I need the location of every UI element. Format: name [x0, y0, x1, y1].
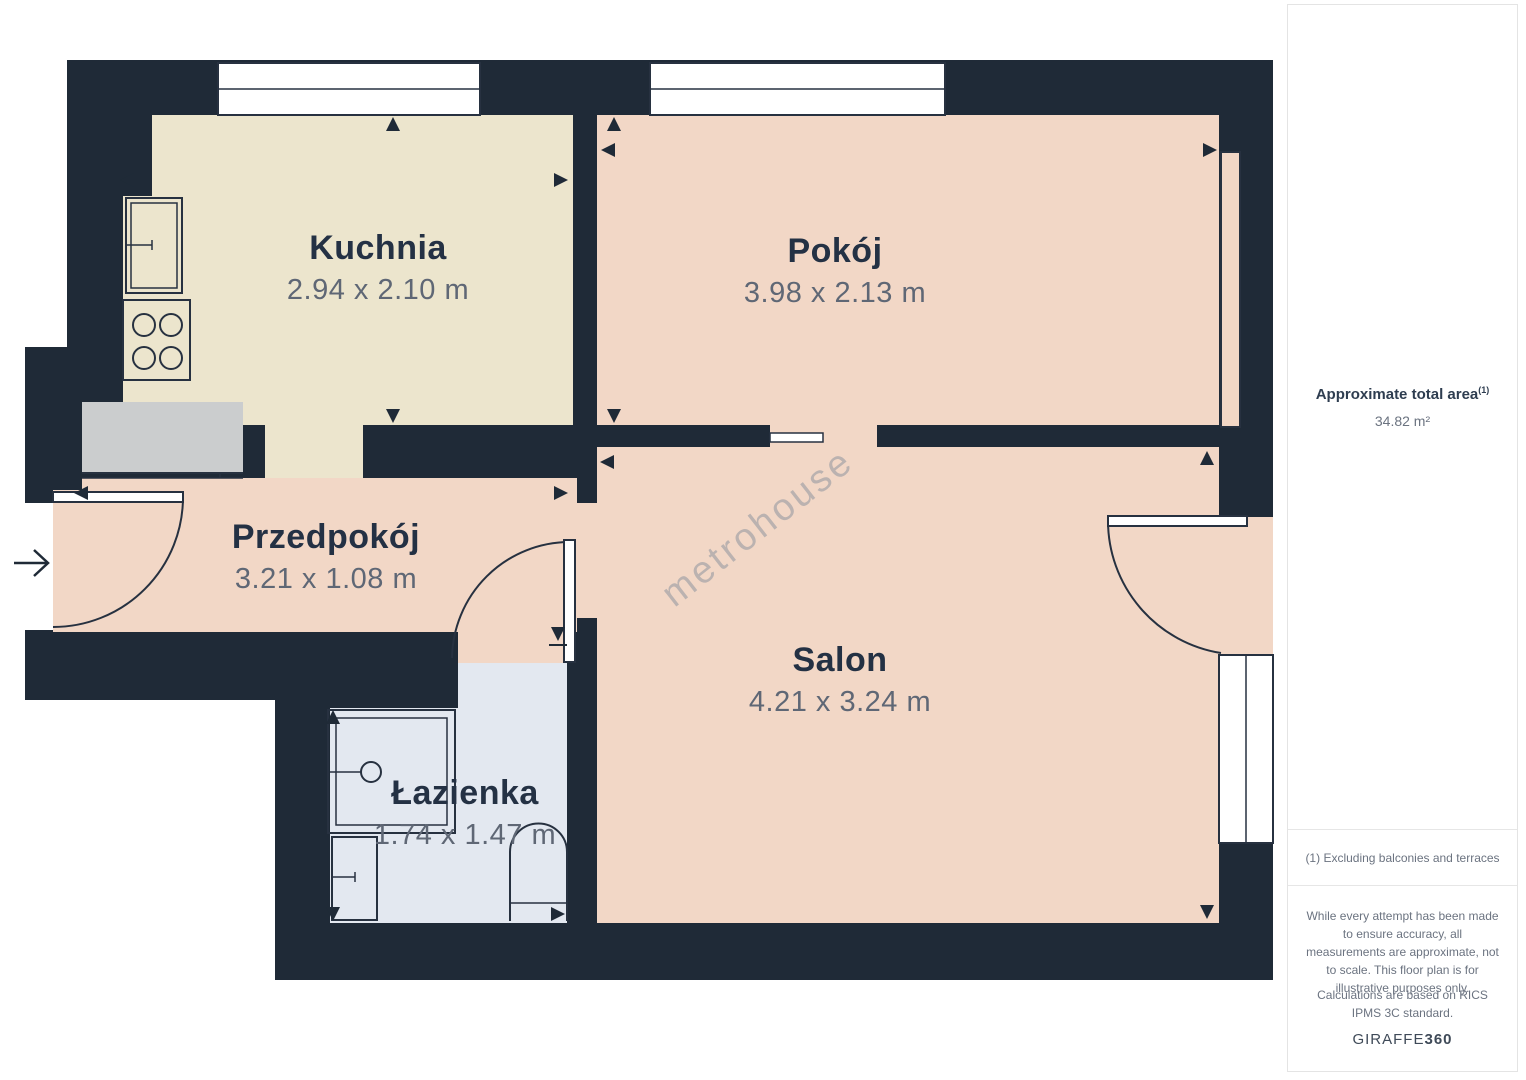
total-area-note-ref: (1) [1478, 385, 1489, 395]
entrance-opening [25, 503, 53, 630]
fridge-symbol [126, 198, 182, 293]
total-area-block: Approximate total area(1) 34.82 m² [1288, 385, 1517, 429]
total-area-label-text: Approximate total area [1316, 386, 1479, 403]
balcony-recess [1221, 152, 1240, 427]
floor-plan-page: Kuchnia 2.94 x 2.10 m Pokój 3.98 x 2.13 … [0, 0, 1526, 1080]
counter-symbol [82, 402, 243, 478]
stove-symbol [123, 300, 190, 380]
divider [1288, 829, 1517, 830]
standard-note: Calculations are based on RICS IPMS 3C s… [1302, 986, 1503, 1022]
footnote: (1) Excluding balconies and terraces [1296, 851, 1509, 865]
info-sidebar: Approximate total area(1) 34.82 m² (1) E… [1287, 4, 1518, 1072]
disclaimer-text: While every attempt has been made to ens… [1302, 907, 1503, 997]
divider [1288, 885, 1517, 886]
room-pokoj-floor [597, 115, 1219, 425]
brand-logo: GIRAFFE360 [1288, 1031, 1517, 1048]
interior-door-leaf [770, 433, 823, 442]
window-kuchnia [218, 63, 480, 115]
brand-number: 360 [1424, 1031, 1452, 1048]
window-salon [1219, 655, 1273, 843]
total-area-value: 34.82 m² [1288, 413, 1517, 429]
brand-name: GIRAFFE [1352, 1031, 1424, 1048]
total-area-label: Approximate total area(1) [1288, 385, 1517, 403]
floor-plan-drawing [0, 0, 1288, 1080]
window-pokoj [650, 63, 945, 115]
room-salon-floor [577, 425, 1273, 923]
